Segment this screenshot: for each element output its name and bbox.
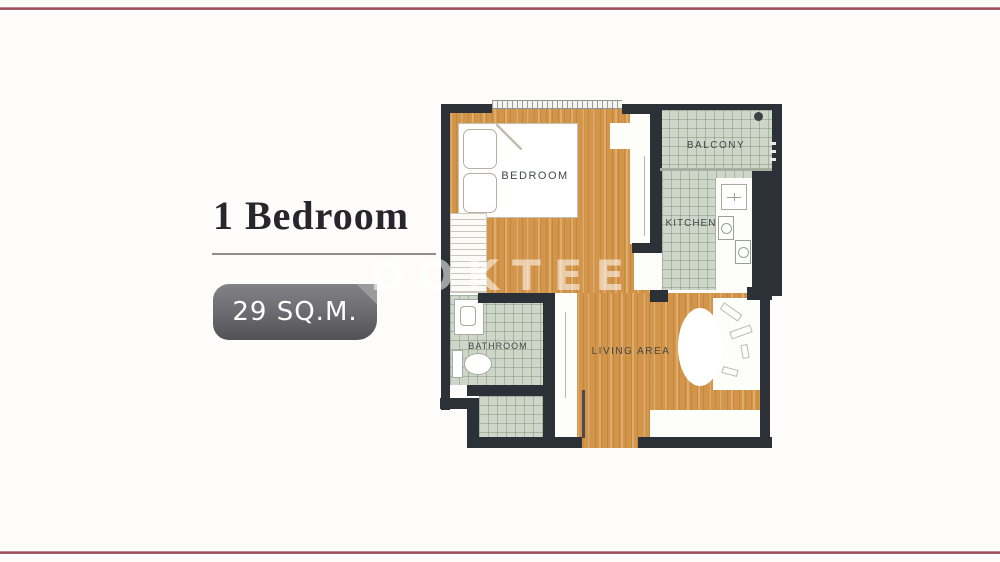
bedroom-window [492, 100, 622, 109]
balcony-drain [754, 112, 763, 121]
wall-hall-kitchen [650, 110, 662, 244]
room-label-living-area: LIVING AREA [581, 346, 681, 357]
faucet-icon [727, 193, 741, 201]
bathroom-sink-basin [460, 306, 476, 326]
blanket-fold [496, 124, 522, 150]
shaft-door-line [644, 156, 645, 236]
room-label-balcony: BALCONY [660, 140, 772, 151]
stove-burner [718, 216, 734, 240]
wall-bathroom-right [543, 293, 555, 448]
balcony-sliding-door [660, 168, 772, 171]
bedroom-closet-notch [610, 123, 630, 149]
wall-bathroom-divider [467, 385, 545, 396]
room-label-bedroom: BEDROOM [485, 170, 585, 182]
stove-burner [735, 240, 751, 264]
utility-tile-floor [479, 396, 543, 437]
wall-step-vertical [467, 398, 479, 448]
area-badge: 29 SQ.M. [213, 284, 377, 340]
bathroom-door-line [565, 312, 566, 398]
wall-bottom-right [638, 437, 772, 448]
wall-living-right [760, 296, 770, 442]
hall-shaft [630, 113, 650, 244]
top-accent-rule [0, 7, 1000, 10]
wall-balcony-top [658, 104, 774, 110]
watermark-text: DOKTEE [370, 251, 690, 297]
room-label-kitchen: KITCHEN [662, 218, 720, 229]
room-label-bathroom: BATHROOM [452, 341, 544, 351]
wall-bottom-left [467, 437, 582, 448]
wall-kitchen-right [752, 170, 782, 296]
bottom-accent-rule [0, 551, 1000, 554]
toilet-tank [452, 350, 463, 378]
page-background: { "listing": { "title": "1 Bedroom", "ar… [0, 0, 1000, 562]
wall-step-horizontal [440, 398, 470, 409]
entry-landing [650, 410, 760, 437]
pillow [463, 129, 497, 169]
dining-table-oval [678, 308, 722, 386]
wall-balcony-right [772, 104, 782, 174]
wall-top-left [443, 104, 492, 113]
page-title: 1 Bedroom [213, 192, 453, 238]
wall-vent-mark [770, 158, 776, 161]
toilet-bowl [464, 353, 492, 375]
entry-door-leaf [582, 390, 585, 438]
bathroom-door-strip [555, 296, 577, 436]
